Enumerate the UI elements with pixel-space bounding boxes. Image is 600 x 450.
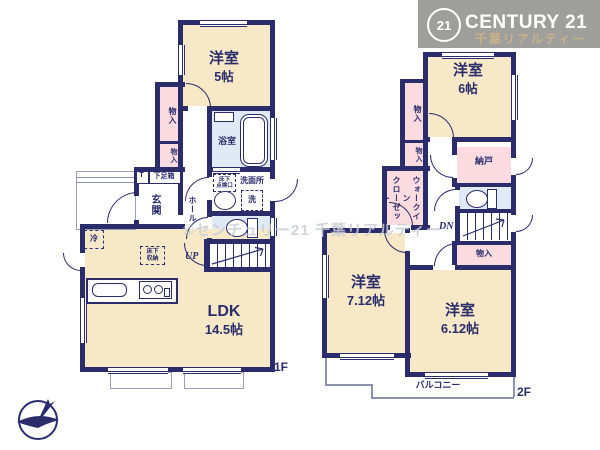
room-size: 7.12帖 <box>347 293 385 308</box>
door-swing-arc <box>430 155 453 178</box>
bath-counter <box>214 112 234 122</box>
door-swing-arc <box>516 158 533 175</box>
window <box>442 52 494 59</box>
wall-segment <box>455 206 460 209</box>
closet-label: 物入 <box>406 93 422 135</box>
shoe-box-label: 下足箱 <box>149 173 179 181</box>
window <box>200 20 247 27</box>
room-label-ldk: LDK 14.5帖 <box>193 302 255 339</box>
century21-seal-icon: 21 <box>427 8 461 42</box>
fridge-box: 冷 <box>84 230 104 249</box>
bathtub-inner <box>243 117 265 164</box>
staircase-1f-arrow <box>206 242 272 269</box>
closet-label: 物入 <box>406 144 422 165</box>
room-name: 洋室 <box>453 62 483 79</box>
fridge-label: 冷 <box>90 235 98 244</box>
wall-segment <box>455 187 460 190</box>
floor-plan-canvas: 洋室 5帖 物入 物入 浴室 T 下足箱 玄関 ホール 洗面所 床下 点検口 洗… <box>0 0 600 450</box>
door-swing-arc <box>434 189 456 211</box>
balcony-outline <box>371 397 514 399</box>
wall-segment <box>405 251 410 377</box>
door-gap <box>270 179 275 201</box>
room-name: LDK <box>208 303 241 320</box>
bathtub <box>240 114 268 167</box>
window <box>425 372 488 379</box>
window <box>270 118 277 160</box>
wall-segment <box>452 137 516 142</box>
balcony-outline <box>513 377 515 397</box>
balcony-outline <box>325 384 371 386</box>
closet-label: 物入 <box>161 94 177 138</box>
underfloor-storage: 床下 収納 <box>140 246 165 265</box>
toilet-tank-2f <box>487 189 497 209</box>
shoe-box-t-label: T <box>136 172 147 180</box>
door-gap <box>80 253 85 267</box>
room-label-western-712: 洋室 7.12帖 <box>332 274 400 310</box>
walk-in-closet-label: ウォークイン クローゼット <box>389 173 421 224</box>
door-swing-arc <box>275 179 298 202</box>
wall-segment <box>452 178 457 187</box>
wall-segment <box>80 224 185 229</box>
brand-logo-band: 21 CENTURY 21 千葉リアルティー <box>418 0 600 48</box>
washer-box: 洗 <box>241 190 263 211</box>
door-gap <box>511 215 516 232</box>
wall-segment <box>134 220 139 229</box>
wall-segment <box>400 79 405 171</box>
north-arrow-icon <box>12 392 66 446</box>
room-size: 14.5帖 <box>205 322 243 337</box>
stairs-up-label: UP <box>185 251 198 263</box>
wall-segment <box>204 242 209 272</box>
burner <box>164 288 170 297</box>
kitchen-sink <box>92 283 127 297</box>
room-size: 5帖 <box>214 70 233 84</box>
window <box>340 353 394 360</box>
wall-segment <box>455 209 516 213</box>
washbasin-sink <box>214 191 236 210</box>
window <box>511 75 518 120</box>
wall-segment <box>155 82 160 171</box>
entrance-label: 玄関 <box>145 188 160 222</box>
room-label-western-612: 洋室 6.12帖 <box>426 302 494 338</box>
underfloor-storage-line1: 床下 <box>146 249 158 256</box>
window <box>108 367 168 374</box>
balcony-label: バルコニー <box>398 380 478 391</box>
window <box>178 45 185 75</box>
balcony-outline <box>76 177 134 178</box>
outline-box <box>110 372 172 389</box>
outline-box <box>184 372 244 389</box>
wall-segment <box>455 265 516 270</box>
balcony-outline <box>371 384 373 398</box>
stove <box>139 281 172 299</box>
room-label-western-6: 洋室 6帖 <box>440 62 496 98</box>
watermark-text: ©センチュリー21 千葉リアルティー <box>183 219 442 240</box>
room-label-western-5: 洋室 5帖 <box>196 50 252 86</box>
room-name: 洋室 <box>209 50 239 67</box>
wall-segment <box>207 211 275 216</box>
door-swing-arc <box>63 253 81 271</box>
door-gap <box>511 158 516 175</box>
underfloor-hatch: 床下 点検口 <box>213 174 236 192</box>
room-name: 洋室 <box>351 274 381 291</box>
wall-segment <box>455 213 460 241</box>
burner <box>154 285 163 294</box>
window <box>322 255 329 298</box>
room-size: 6帖 <box>458 82 477 96</box>
window <box>80 298 87 343</box>
wall-segment <box>452 241 516 245</box>
burner <box>143 285 152 294</box>
floor2-label: 2F <box>517 385 531 399</box>
floor1-label: 1F <box>274 360 288 374</box>
balcony-outline <box>76 182 134 183</box>
wall-segment <box>452 142 457 155</box>
window <box>183 367 241 374</box>
wall-segment <box>455 183 516 187</box>
bathroom-label: 浴室 <box>212 136 242 147</box>
underfloor-hatch-line2: 点検口 <box>216 183 233 189</box>
toilet-bowl-2f <box>466 190 488 208</box>
underfloor-storage-line2: 収納 <box>146 256 158 263</box>
closet-label: 物入 <box>464 249 504 259</box>
closet-label: 物入 <box>161 145 177 166</box>
staircase-2f-arrow <box>457 212 513 241</box>
wall-segment <box>204 267 275 272</box>
room-name: 洋室 <box>445 302 475 319</box>
wall-segment <box>423 52 428 230</box>
brand-subtitle: 千葉リアルティー <box>475 30 586 47</box>
room-size: 6.12帖 <box>441 321 479 336</box>
wall-segment <box>207 106 275 111</box>
wall-segment <box>207 200 212 217</box>
door-swing-arc <box>516 215 533 232</box>
window <box>213 167 240 174</box>
washer-label: 洗 <box>248 196 256 205</box>
wall-segment <box>452 245 457 265</box>
washroom-label: 洗面所 <box>234 176 270 186</box>
storeroom-label: 納戸 <box>464 156 504 167</box>
balcony-outline <box>325 356 327 384</box>
